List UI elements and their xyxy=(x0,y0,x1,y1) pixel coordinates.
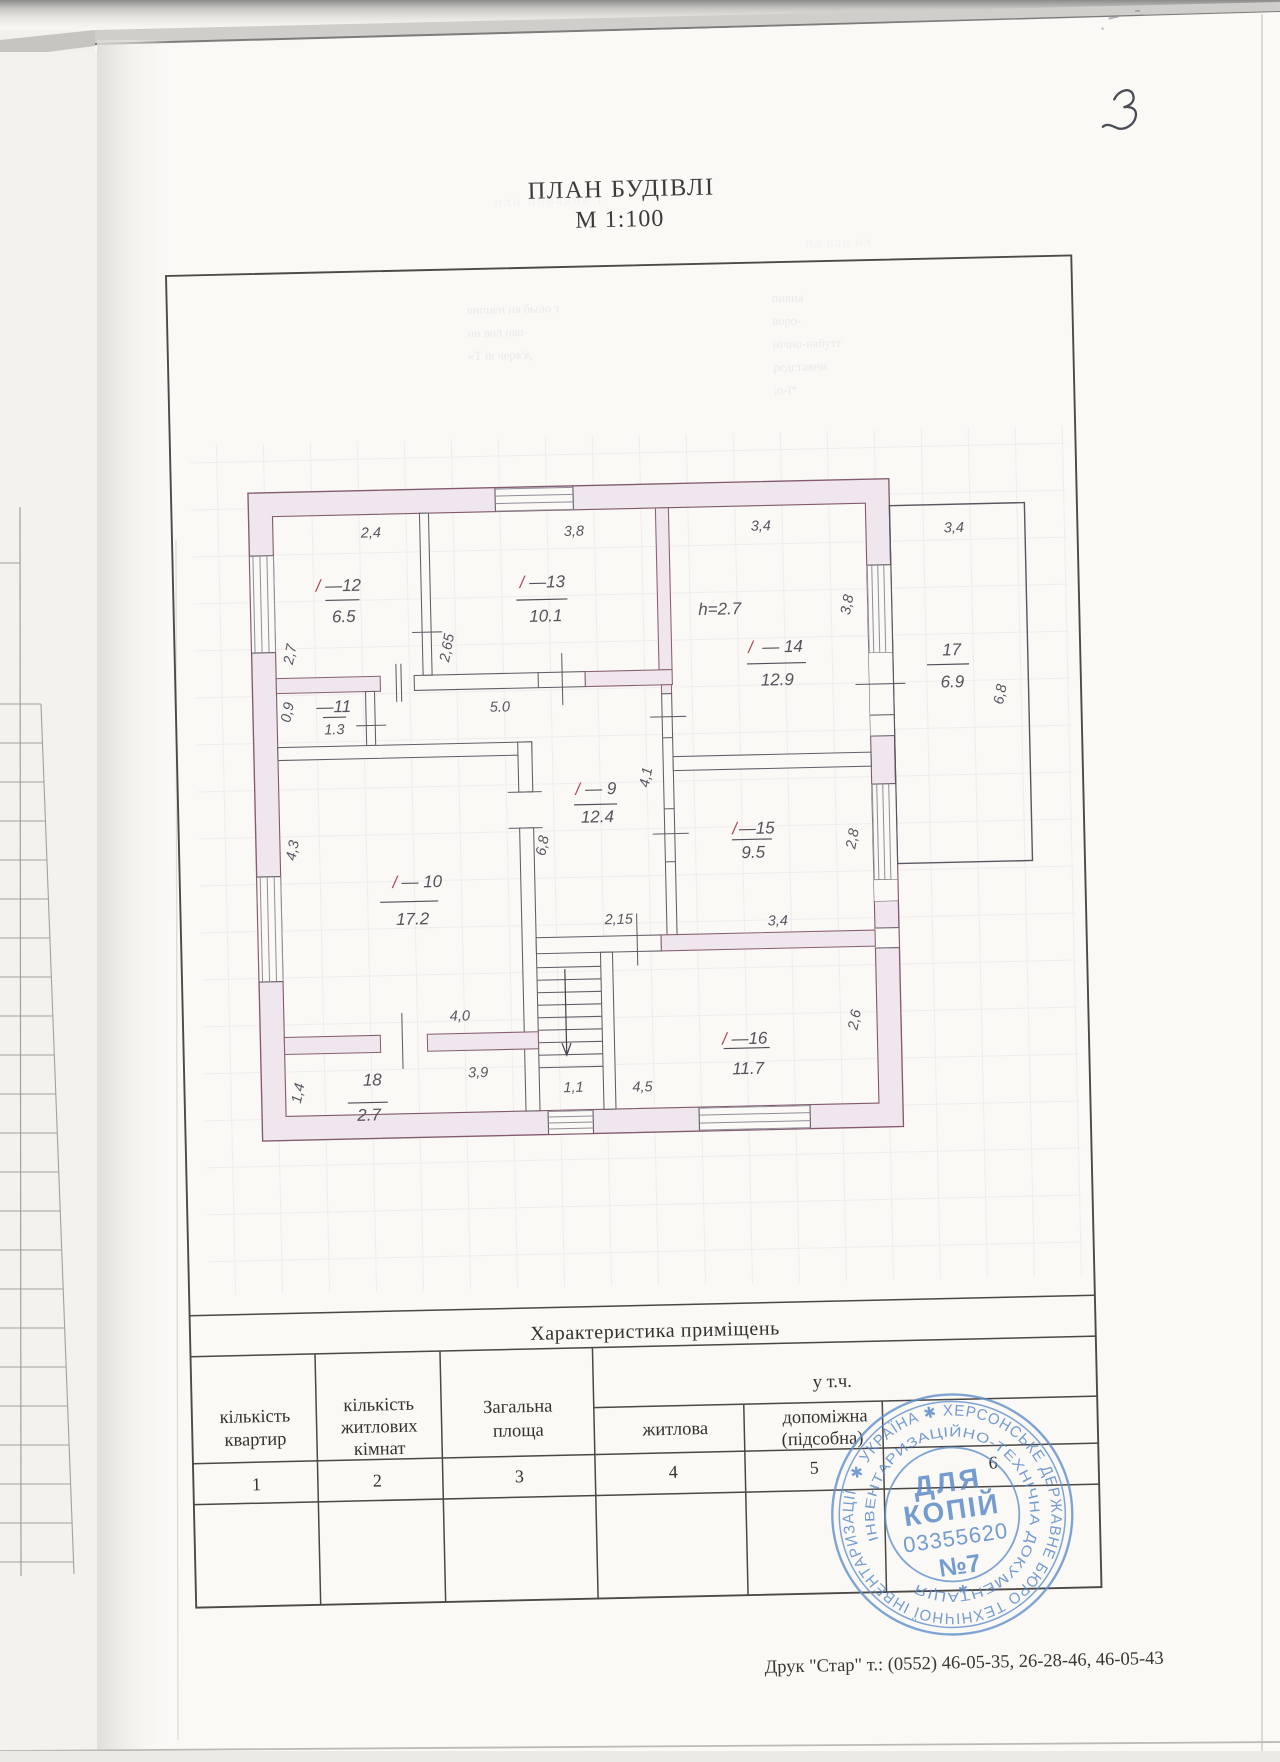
svg-text:житлова: житлова xyxy=(641,1419,708,1441)
svg-text:3,9: 3,9 xyxy=(468,1065,489,1081)
svg-text:Загальна: Загальна xyxy=(483,1397,553,1419)
svg-text:2,4: 2,4 xyxy=(360,525,382,541)
svg-text:площа: площа xyxy=(493,1421,544,1442)
svg-text:2: 2 xyxy=(373,1470,382,1490)
svg-text:—11: —11 xyxy=(315,697,351,717)
svg-text:пл нан нл: пл нан нл xyxy=(805,235,871,251)
svg-text:допоміжна: допоміжна xyxy=(782,1406,868,1428)
svg-text:3,4: 3,4 xyxy=(751,518,772,534)
svg-text:3: 3 xyxy=(515,1466,524,1486)
svg-text:3,8: 3,8 xyxy=(564,524,585,540)
svg-text:«Т ів черв'я,: «Т ів черв'я, xyxy=(468,348,533,363)
svg-text:1.3: 1.3 xyxy=(324,722,345,738)
svg-text:12.9: 12.9 xyxy=(761,670,795,690)
svg-text:4,0: 4,0 xyxy=(450,1008,471,1024)
svg-text:2,15: 2,15 xyxy=(603,912,634,929)
svg-text:—12: —12 xyxy=(324,576,362,596)
svg-text:3,4: 3,4 xyxy=(768,913,789,929)
svg-text:житлових: житлових xyxy=(340,1417,419,1439)
svg-text:12.4: 12.4 xyxy=(581,807,615,827)
svg-text:пивна: пивна xyxy=(772,291,804,306)
svg-text:— 14: — 14 xyxy=(761,637,803,657)
svg-text:—13: —13 xyxy=(528,572,566,592)
svg-text:4,5: 4,5 xyxy=(632,1079,653,1095)
svg-text:М 1:100: М 1:100 xyxy=(575,206,665,234)
svg-text:6.5: 6.5 xyxy=(332,607,357,627)
svg-text:3,4: 3,4 xyxy=(944,520,965,536)
svg-text:(підсобна): (підсобна) xyxy=(781,1428,863,1450)
svg-text:воро-: воро- xyxy=(772,314,801,329)
svg-text:✱: ✱ xyxy=(957,1582,969,1597)
svg-text:кімнат: кімнат xyxy=(354,1439,406,1460)
svg-text:10.1: 10.1 xyxy=(529,606,563,626)
svg-text:випнен ня было з: випнен ня было з xyxy=(467,301,560,317)
svg-text:;о-ї*: ;о-ї* xyxy=(774,383,798,398)
svg-text:кількість: кількість xyxy=(219,1406,290,1428)
svg-text:у т.ч.: у т.ч. xyxy=(812,1372,852,1393)
svg-text:11.7: 11.7 xyxy=(732,1059,765,1079)
svg-text:9.5: 9.5 xyxy=(741,843,766,863)
svg-text:— 9: — 9 xyxy=(584,779,617,799)
svg-text:18: 18 xyxy=(363,1070,383,1089)
svg-text:h=2.7: h=2.7 xyxy=(698,599,742,619)
svg-text:нічно-набутт: нічно-набутт xyxy=(773,336,843,352)
svg-text:нн вол нко: нн вол нко xyxy=(467,325,523,340)
svg-text:1,1: 1,1 xyxy=(563,1080,584,1096)
svg-text:— 10: — 10 xyxy=(400,872,443,892)
svg-text:5: 5 xyxy=(809,1458,818,1478)
svg-text:1: 1 xyxy=(252,1474,261,1494)
svg-text:2.7: 2.7 xyxy=(356,1105,382,1125)
svg-text:кількість: кількість xyxy=(343,1395,414,1417)
svg-text:квартир: квартир xyxy=(224,1430,286,1451)
svg-text:—15: —15 xyxy=(738,818,776,838)
svg-text:17.2: 17.2 xyxy=(396,909,430,929)
svg-text:5.0: 5.0 xyxy=(490,699,511,715)
svg-text:6: 6 xyxy=(988,1452,997,1472)
svg-text:17: 17 xyxy=(942,640,962,659)
svg-text:6.9: 6.9 xyxy=(940,672,965,692)
svg-text:—16: —16 xyxy=(730,1029,768,1049)
svg-text:редставни: редставни xyxy=(773,359,828,374)
svg-text:нлн п864вня т: нлн п864вня т xyxy=(494,193,604,210)
svg-text:№7: №7 xyxy=(937,1549,982,1583)
svg-text:4: 4 xyxy=(669,1462,678,1482)
